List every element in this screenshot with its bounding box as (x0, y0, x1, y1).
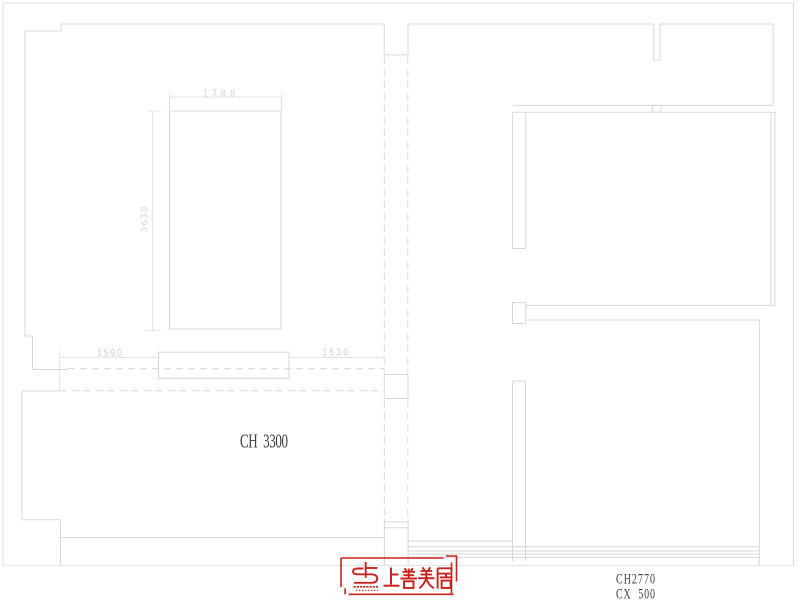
svg-text:3630: 3630 (139, 207, 150, 232)
svg-text:CH 3300: CH 3300 (240, 430, 288, 453)
svg-text:1530: 1530 (323, 347, 349, 358)
svg-text:CX 500: CX 500 (616, 586, 655, 600)
svg-text:1590: 1590 (97, 347, 122, 358)
svg-text:CH2770: CH2770 (616, 571, 655, 587)
